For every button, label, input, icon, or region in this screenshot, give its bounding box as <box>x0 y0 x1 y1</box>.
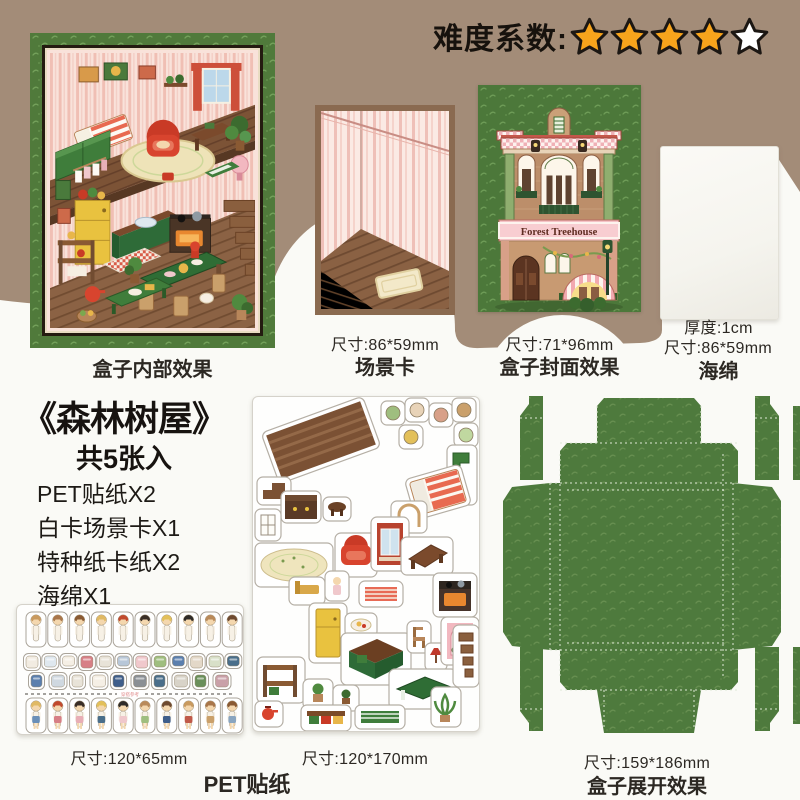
caption-box-cover: 盒子封面效果 <box>478 351 641 380</box>
product-subtitle: 共5张入 <box>14 437 234 476</box>
pet-sticker-sheet-small: 穿搭参考 <box>16 604 244 735</box>
svg-text:Forest Treehouse: Forest Treehouse <box>521 227 598 238</box>
star-icon <box>689 16 730 57</box>
difficulty-stars <box>570 16 770 57</box>
contents-item: 海绵X1 <box>37 579 180 613</box>
caption-box-unfolded: 盒子展开效果 <box>527 770 767 799</box>
box-unfolded-template <box>503 394 800 734</box>
contents-item: 白卡场景卡X1 <box>37 511 180 545</box>
star-icon <box>649 16 690 57</box>
sponge <box>660 146 779 320</box>
big-sheet-size: 尺寸:120*170mm <box>252 745 478 769</box>
scene-card <box>315 105 455 315</box>
star-icon <box>609 16 650 57</box>
contents-list: PET贴纸X2 白卡场景卡X1 特种纸卡纸X2 海绵X1 <box>37 477 180 613</box>
star-icon <box>729 16 770 57</box>
difficulty-label: 难度系数: <box>433 14 568 58</box>
contents-item: PET贴纸X2 <box>37 477 180 511</box>
pet-sticker-sheet-large <box>252 396 480 732</box>
caption-sponge: 海绵 <box>660 355 777 384</box>
box-cover-card: Forest Treehouse <box>478 85 641 312</box>
caption-pet-sticker: PET贴纸 <box>137 767 357 799</box>
box-interior-picture <box>30 33 275 348</box>
small-sheet-size: 尺寸:120*65mm <box>16 745 242 769</box>
caption-scene-card: 场景卡 <box>315 351 455 380</box>
difficulty-row: 难度系数: <box>433 14 770 58</box>
scene-card-art <box>321 111 449 309</box>
caption-box-interior: 盒子内部效果 <box>30 353 275 382</box>
box-interior-art <box>50 53 255 328</box>
contents-item: 特种纸卡纸X2 <box>37 545 180 579</box>
star-icon <box>569 16 610 57</box>
svg-text:穿搭参考: 穿搭参考 <box>121 691 139 698</box>
product-infographic: 盒子内部效果 难度系数: 尺寸:86*59mm 场景卡 Forest Treeh… <box>0 0 800 800</box>
product-title: 《森林树屋》 <box>14 391 234 442</box>
